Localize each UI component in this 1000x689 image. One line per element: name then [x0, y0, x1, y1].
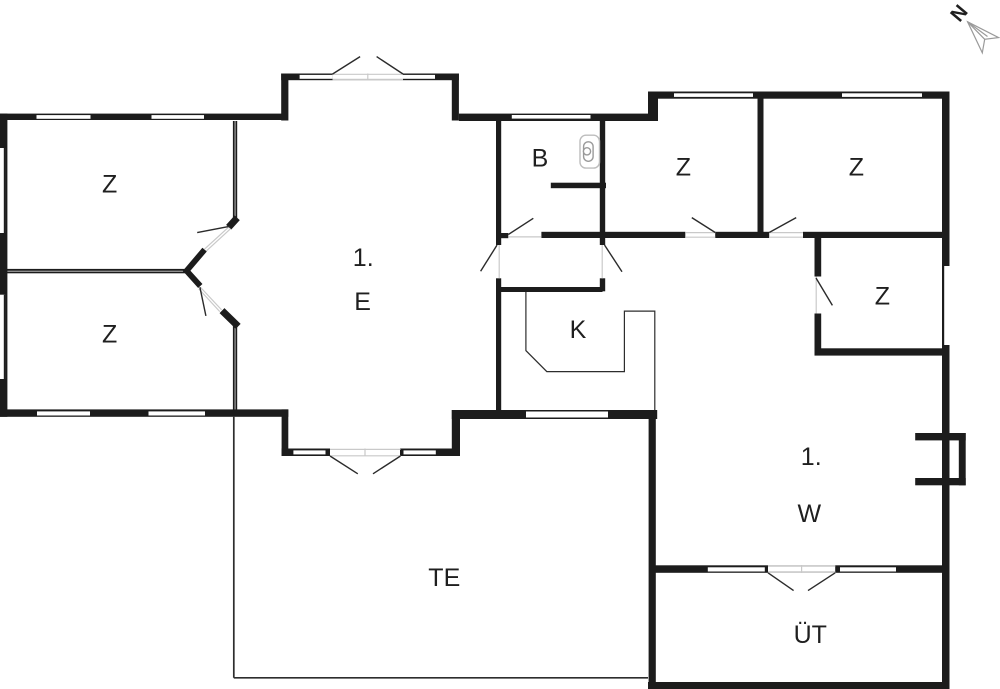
svg-text:Z: Z [875, 283, 890, 311]
svg-text:Z: Z [102, 321, 117, 349]
svg-text:B: B [532, 144, 549, 172]
svg-text:E: E [354, 288, 371, 316]
svg-text:1.: 1. [353, 244, 374, 272]
svg-text:Z: Z [676, 153, 691, 181]
svg-text:TE: TE [428, 564, 460, 592]
svg-text:K: K [570, 316, 587, 344]
svg-text:ÜT: ÜT [794, 621, 827, 649]
svg-text:Z: Z [102, 171, 117, 199]
svg-text:W: W [798, 500, 822, 528]
svg-text:Z: Z [849, 153, 864, 181]
svg-text:1.: 1. [801, 443, 822, 471]
